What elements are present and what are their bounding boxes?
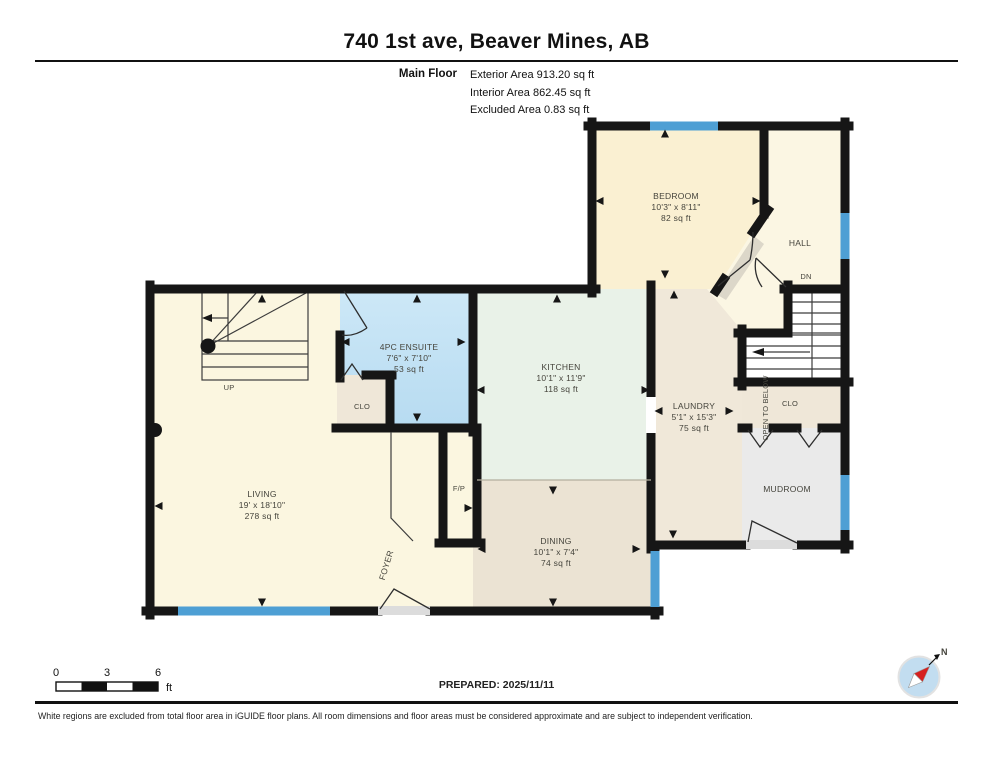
living-dims: 19' x 18'10": [239, 500, 286, 510]
window-dining: [651, 551, 660, 607]
fireplace-label: F/P: [453, 484, 465, 493]
compass-north-label: N: [941, 647, 948, 657]
dining-area: 74 sq ft: [541, 558, 571, 568]
bedroom-dims: 10'3" x 8'11": [651, 202, 700, 212]
mudroom-door-threshold: [746, 540, 797, 549]
bedroom-area: 82 sq ft: [661, 213, 691, 223]
hall-label: HALL: [789, 238, 811, 248]
stairs-up-label: UP: [224, 383, 235, 392]
dining-label: DINING: [540, 536, 571, 546]
laundry-label: LAUNDRY: [673, 401, 715, 411]
bedroom-label: BEDROOM: [653, 191, 699, 201]
prepared-date: PREPARED: 2025/11/11: [0, 679, 993, 691]
floorplan-drawing: BEDROOM 10'3" x 8'11" 82 sq ft HALL DN K…: [0, 0, 993, 768]
footer-divider: [35, 701, 958, 704]
window-living: [178, 607, 330, 616]
dining-dims: 10'1" x 7'4": [534, 547, 579, 557]
floorplan-page: 740 1st ave, Beaver Mines, AB Main Floor…: [0, 0, 993, 768]
window-bedroom: [650, 122, 718, 131]
mudroom-label: MUDROOM: [763, 484, 811, 494]
stairs-newel-post: [201, 339, 216, 354]
ensuite-dims: 7'6" x 7'10": [387, 353, 432, 363]
ensuite-label: 4PC ENSUITE: [380, 342, 439, 352]
laundry-area: 75 sq ft: [679, 423, 709, 433]
stairs-down-arrow: [752, 348, 764, 356]
wall-dot-marker: [148, 423, 162, 437]
kitchen-laundry-opening: [646, 397, 656, 433]
living-label: LIVING: [247, 489, 276, 499]
closet-left-label: CLO: [354, 402, 370, 411]
scale-tick-6: 6: [155, 667, 161, 679]
kitchen-label: KITCHEN: [541, 362, 580, 372]
scale-tick-3: 3: [104, 667, 110, 679]
living-area: 278 sq ft: [245, 511, 280, 521]
laundry-dims: 5'1" x 15'3": [672, 412, 717, 422]
disclaimer-text: White regions are excluded from total fl…: [38, 711, 973, 721]
closet-right-label: CLO: [782, 399, 798, 408]
scale-tick-0: 0: [53, 667, 59, 679]
kitchen-area: 118 sq ft: [544, 384, 579, 394]
front-door-threshold: [378, 606, 430, 615]
window-hall: [841, 213, 850, 259]
open-to-below-label: OPEN TO BELOW: [761, 375, 770, 441]
window-mudroom: [841, 475, 850, 530]
ensuite-area: 53 sq ft: [394, 364, 424, 374]
stairs-dn-label: DN: [800, 272, 811, 281]
kitchen-dims: 10'1" x 11'9": [536, 373, 585, 383]
